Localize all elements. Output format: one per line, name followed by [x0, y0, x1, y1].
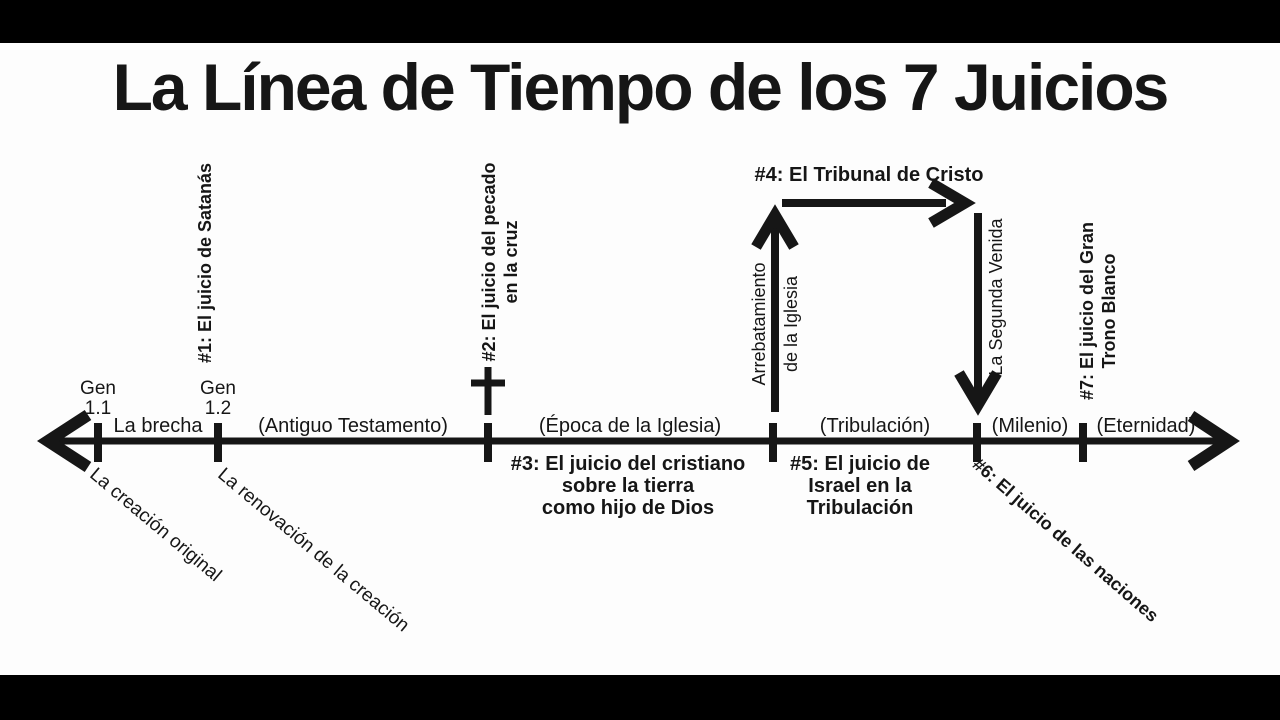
segment-eternidad: (Eternidad): [1097, 416, 1196, 436]
segment-tribulacion: (Tribulación): [820, 416, 930, 436]
segment-antiguo-testamento: (Antiguo Testamento): [258, 416, 448, 436]
segment-la-brecha: La brecha: [114, 416, 203, 436]
tribunal-right-arrow-icon: [782, 183, 965, 223]
cross-icon: [471, 367, 505, 415]
rapture-label-line2: de la Iglesia: [780, 276, 802, 372]
second-coming-label: La Segunda Venida: [985, 218, 1007, 375]
marker-gen-1-1: Gen 1.1: [80, 379, 116, 419]
marker-gen-1-2: Gen 1.2: [200, 379, 236, 419]
judgment-5-label: #5: El juicio de Israel en la Tribulació…: [790, 453, 930, 519]
judgment-1-label: #1: El juicio de Satanás: [194, 163, 216, 363]
judgment-7-label: #7: El juicio del Gran Trono Blanco: [1076, 222, 1120, 400]
rapture-label-line1: Arrebatamiento: [748, 262, 770, 385]
judgment-3-label: #3: El juicio del cristiano sobre la tie…: [511, 453, 746, 519]
segment-milenio: (Milenio): [992, 416, 1069, 436]
judgment-4-label: #4: El Tribunal de Cristo: [755, 164, 984, 187]
timeline-diagram: La Línea de Tiempo de los 7 Juicios: [0, 0, 1280, 720]
segment-epoca-iglesia: (Época de la Iglesia): [539, 416, 721, 436]
judgment-2-label: #2: El juicio del pecado en la cruz: [478, 162, 522, 361]
